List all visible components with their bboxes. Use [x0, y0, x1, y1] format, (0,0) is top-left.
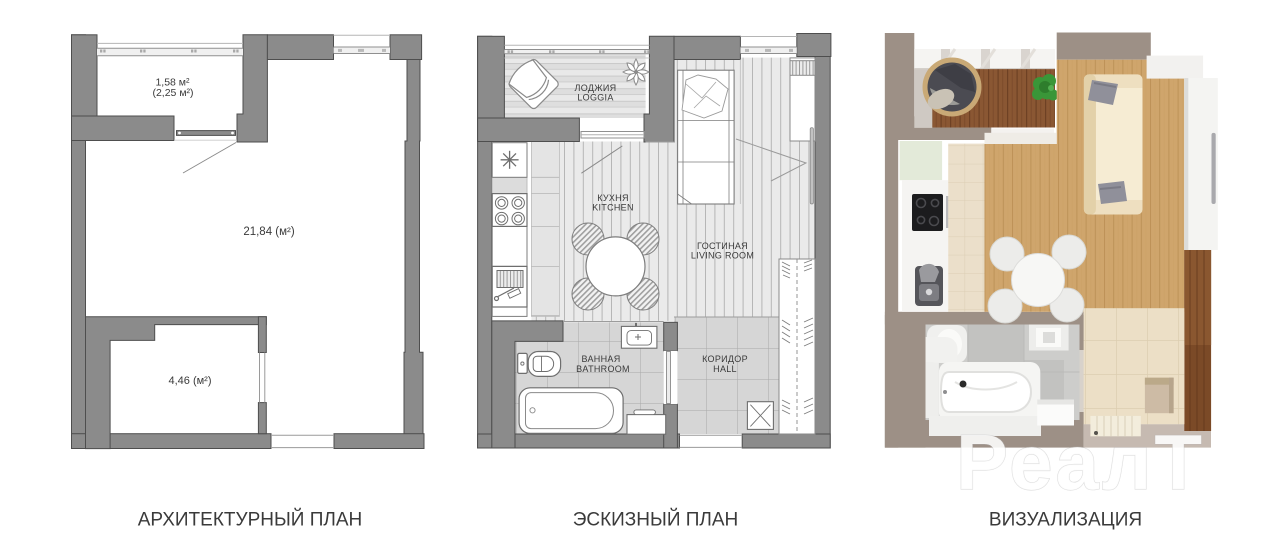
svg-text:КОРИДОР: КОРИДОР: [702, 354, 748, 364]
svg-text:(2,25 м²): (2,25 м²): [152, 87, 193, 99]
svg-text:LIVING ROOM: LIVING ROOM: [691, 250, 754, 260]
svg-text:LOGGIA: LOGGIA: [577, 93, 613, 103]
svg-text:ЛОДЖИЯ: ЛОДЖИЯ: [575, 83, 617, 93]
svg-text:4,46 (м²): 4,46 (м²): [168, 375, 211, 387]
svg-text:HALL: HALL: [713, 364, 737, 374]
svg-text:АРХИТЕКТУРНЫЙ ПЛАН: АРХИТЕКТУРНЫЙ ПЛАН: [138, 509, 363, 531]
svg-text:РеалТ: РеалТ: [956, 418, 1205, 506]
svg-text:21,84 (м²): 21,84 (м²): [243, 226, 295, 238]
svg-text:ВАННАЯ: ВАННАЯ: [581, 354, 620, 364]
svg-text:ЭСКИЗНЫЙ ПЛАН: ЭСКИЗНЫЙ ПЛАН: [573, 509, 739, 531]
svg-text:BATHROOM: BATHROOM: [576, 364, 630, 374]
svg-text:KITCHEN: KITCHEN: [592, 203, 634, 213]
svg-text:ГОСТИНАЯ: ГОСТИНАЯ: [697, 241, 748, 251]
svg-text:ВИЗУАЛИЗАЦИЯ: ВИЗУАЛИЗАЦИЯ: [989, 510, 1142, 531]
svg-text:КУХНЯ: КУХНЯ: [597, 193, 629, 203]
